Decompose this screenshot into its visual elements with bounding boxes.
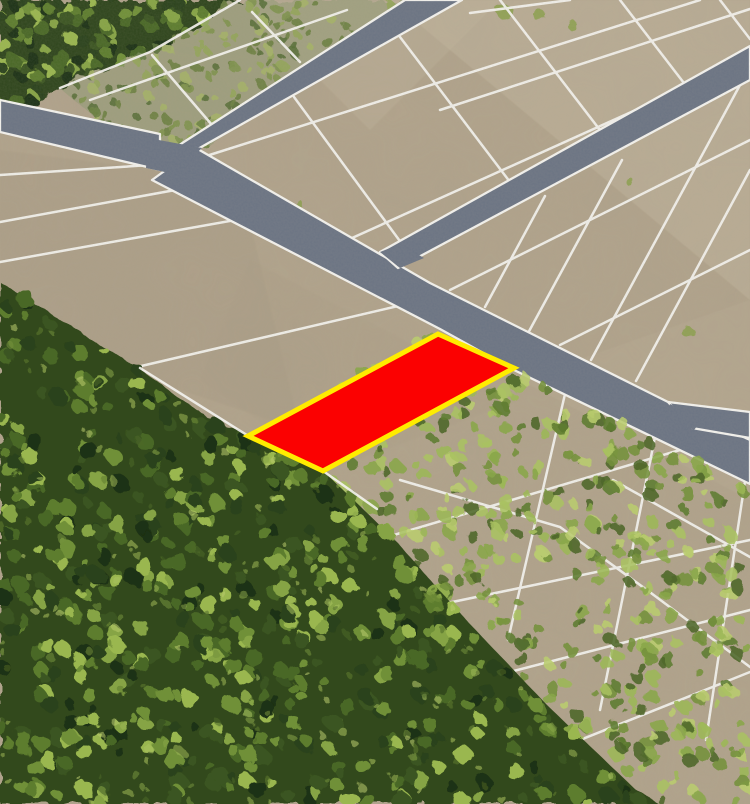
aerial-parcel-map [0,0,750,804]
aerial-photo-canvas [0,0,750,804]
